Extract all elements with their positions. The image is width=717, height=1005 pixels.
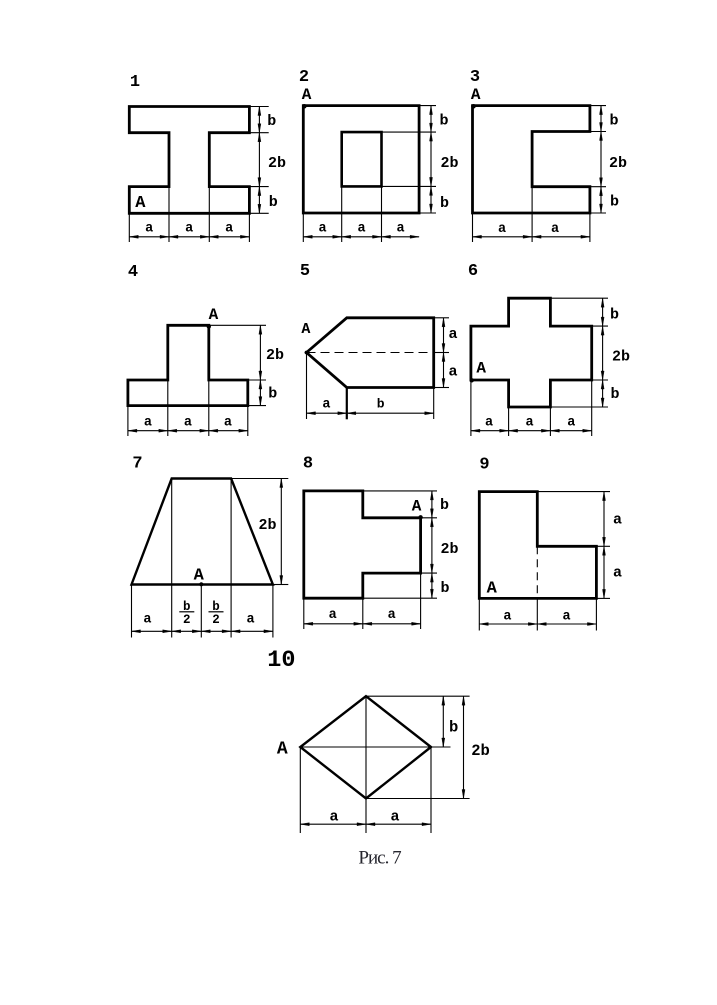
svg-text:a: a: [613, 512, 622, 529]
svg-text:a: a: [224, 416, 232, 431]
svg-text:8: 8: [303, 455, 313, 474]
svg-text:a: a: [396, 222, 404, 237]
svg-text:A: A: [277, 739, 288, 759]
svg-text:b: b: [610, 307, 619, 324]
svg-text:a: a: [329, 608, 337, 623]
svg-text:a: a: [388, 608, 396, 623]
svg-text:2b: 2b: [612, 349, 630, 366]
svg-text:A: A: [301, 321, 310, 338]
svg-text:a: a: [448, 364, 457, 381]
svg-text:2b: 2b: [471, 742, 490, 760]
svg-text:1: 1: [130, 73, 140, 92]
svg-text:a: a: [390, 809, 399, 826]
svg-text:a: a: [318, 222, 326, 237]
svg-text:a: a: [143, 612, 151, 627]
svg-text:A: A: [135, 194, 146, 213]
svg-text:a: a: [184, 416, 192, 431]
svg-text:b: b: [440, 195, 449, 212]
svg-text:6: 6: [468, 262, 478, 281]
svg-text:a: a: [562, 610, 570, 625]
svg-text:a: a: [357, 222, 365, 237]
svg-text:a: a: [329, 809, 338, 826]
svg-text:b: b: [439, 113, 448, 130]
svg-text:a: a: [485, 416, 493, 431]
svg-text:a: a: [185, 222, 193, 237]
svg-text:a: a: [322, 398, 330, 413]
svg-text:4: 4: [128, 263, 138, 282]
svg-text:2b: 2b: [266, 347, 284, 364]
svg-text:a: a: [247, 612, 255, 627]
svg-text:2: 2: [299, 68, 309, 87]
svg-text:a: a: [448, 326, 457, 343]
svg-text:7: 7: [132, 455, 142, 474]
svg-text:A: A: [476, 359, 486, 377]
svg-text:b: b: [267, 113, 276, 130]
svg-text:A: A: [209, 306, 219, 324]
svg-text:b: b: [268, 385, 277, 402]
svg-text:9: 9: [479, 456, 489, 475]
svg-text:a: a: [551, 222, 559, 237]
svg-text:a: a: [225, 222, 233, 237]
svg-text:2b: 2b: [440, 155, 458, 172]
svg-text:b: b: [377, 397, 385, 412]
svg-text:A: A: [471, 86, 481, 104]
svg-text:b: b: [440, 580, 449, 597]
svg-text:10: 10: [267, 647, 295, 674]
svg-text:2b: 2b: [440, 541, 458, 558]
svg-text:b: b: [610, 193, 619, 210]
svg-text:a: a: [498, 222, 506, 237]
svg-text:a: a: [613, 565, 622, 582]
svg-text:2b: 2b: [268, 155, 286, 172]
svg-text:b: b: [449, 719, 458, 737]
svg-text:A: A: [412, 498, 422, 516]
svg-text:b: b: [609, 113, 618, 130]
svg-text:A: A: [487, 580, 498, 599]
svg-text:a: a: [525, 416, 533, 431]
svg-text:a: a: [503, 610, 511, 625]
svg-text:A: A: [194, 567, 205, 586]
svg-text:b: b: [610, 386, 619, 403]
svg-text:a: a: [567, 416, 575, 431]
svg-text:2b: 2b: [258, 517, 276, 534]
svg-text:b: b: [440, 497, 449, 514]
svg-text:a: a: [145, 222, 153, 237]
svg-text:Рис. 7: Рис. 7: [358, 848, 401, 869]
svg-text:2b: 2b: [609, 155, 627, 172]
svg-text:3: 3: [470, 68, 480, 87]
svg-text:a: a: [144, 416, 152, 431]
svg-text:2: 2: [212, 613, 220, 627]
svg-text:A: A: [302, 86, 312, 104]
svg-text:b: b: [269, 194, 278, 211]
svg-text:5: 5: [300, 262, 310, 281]
svg-text:2: 2: [183, 613, 191, 627]
